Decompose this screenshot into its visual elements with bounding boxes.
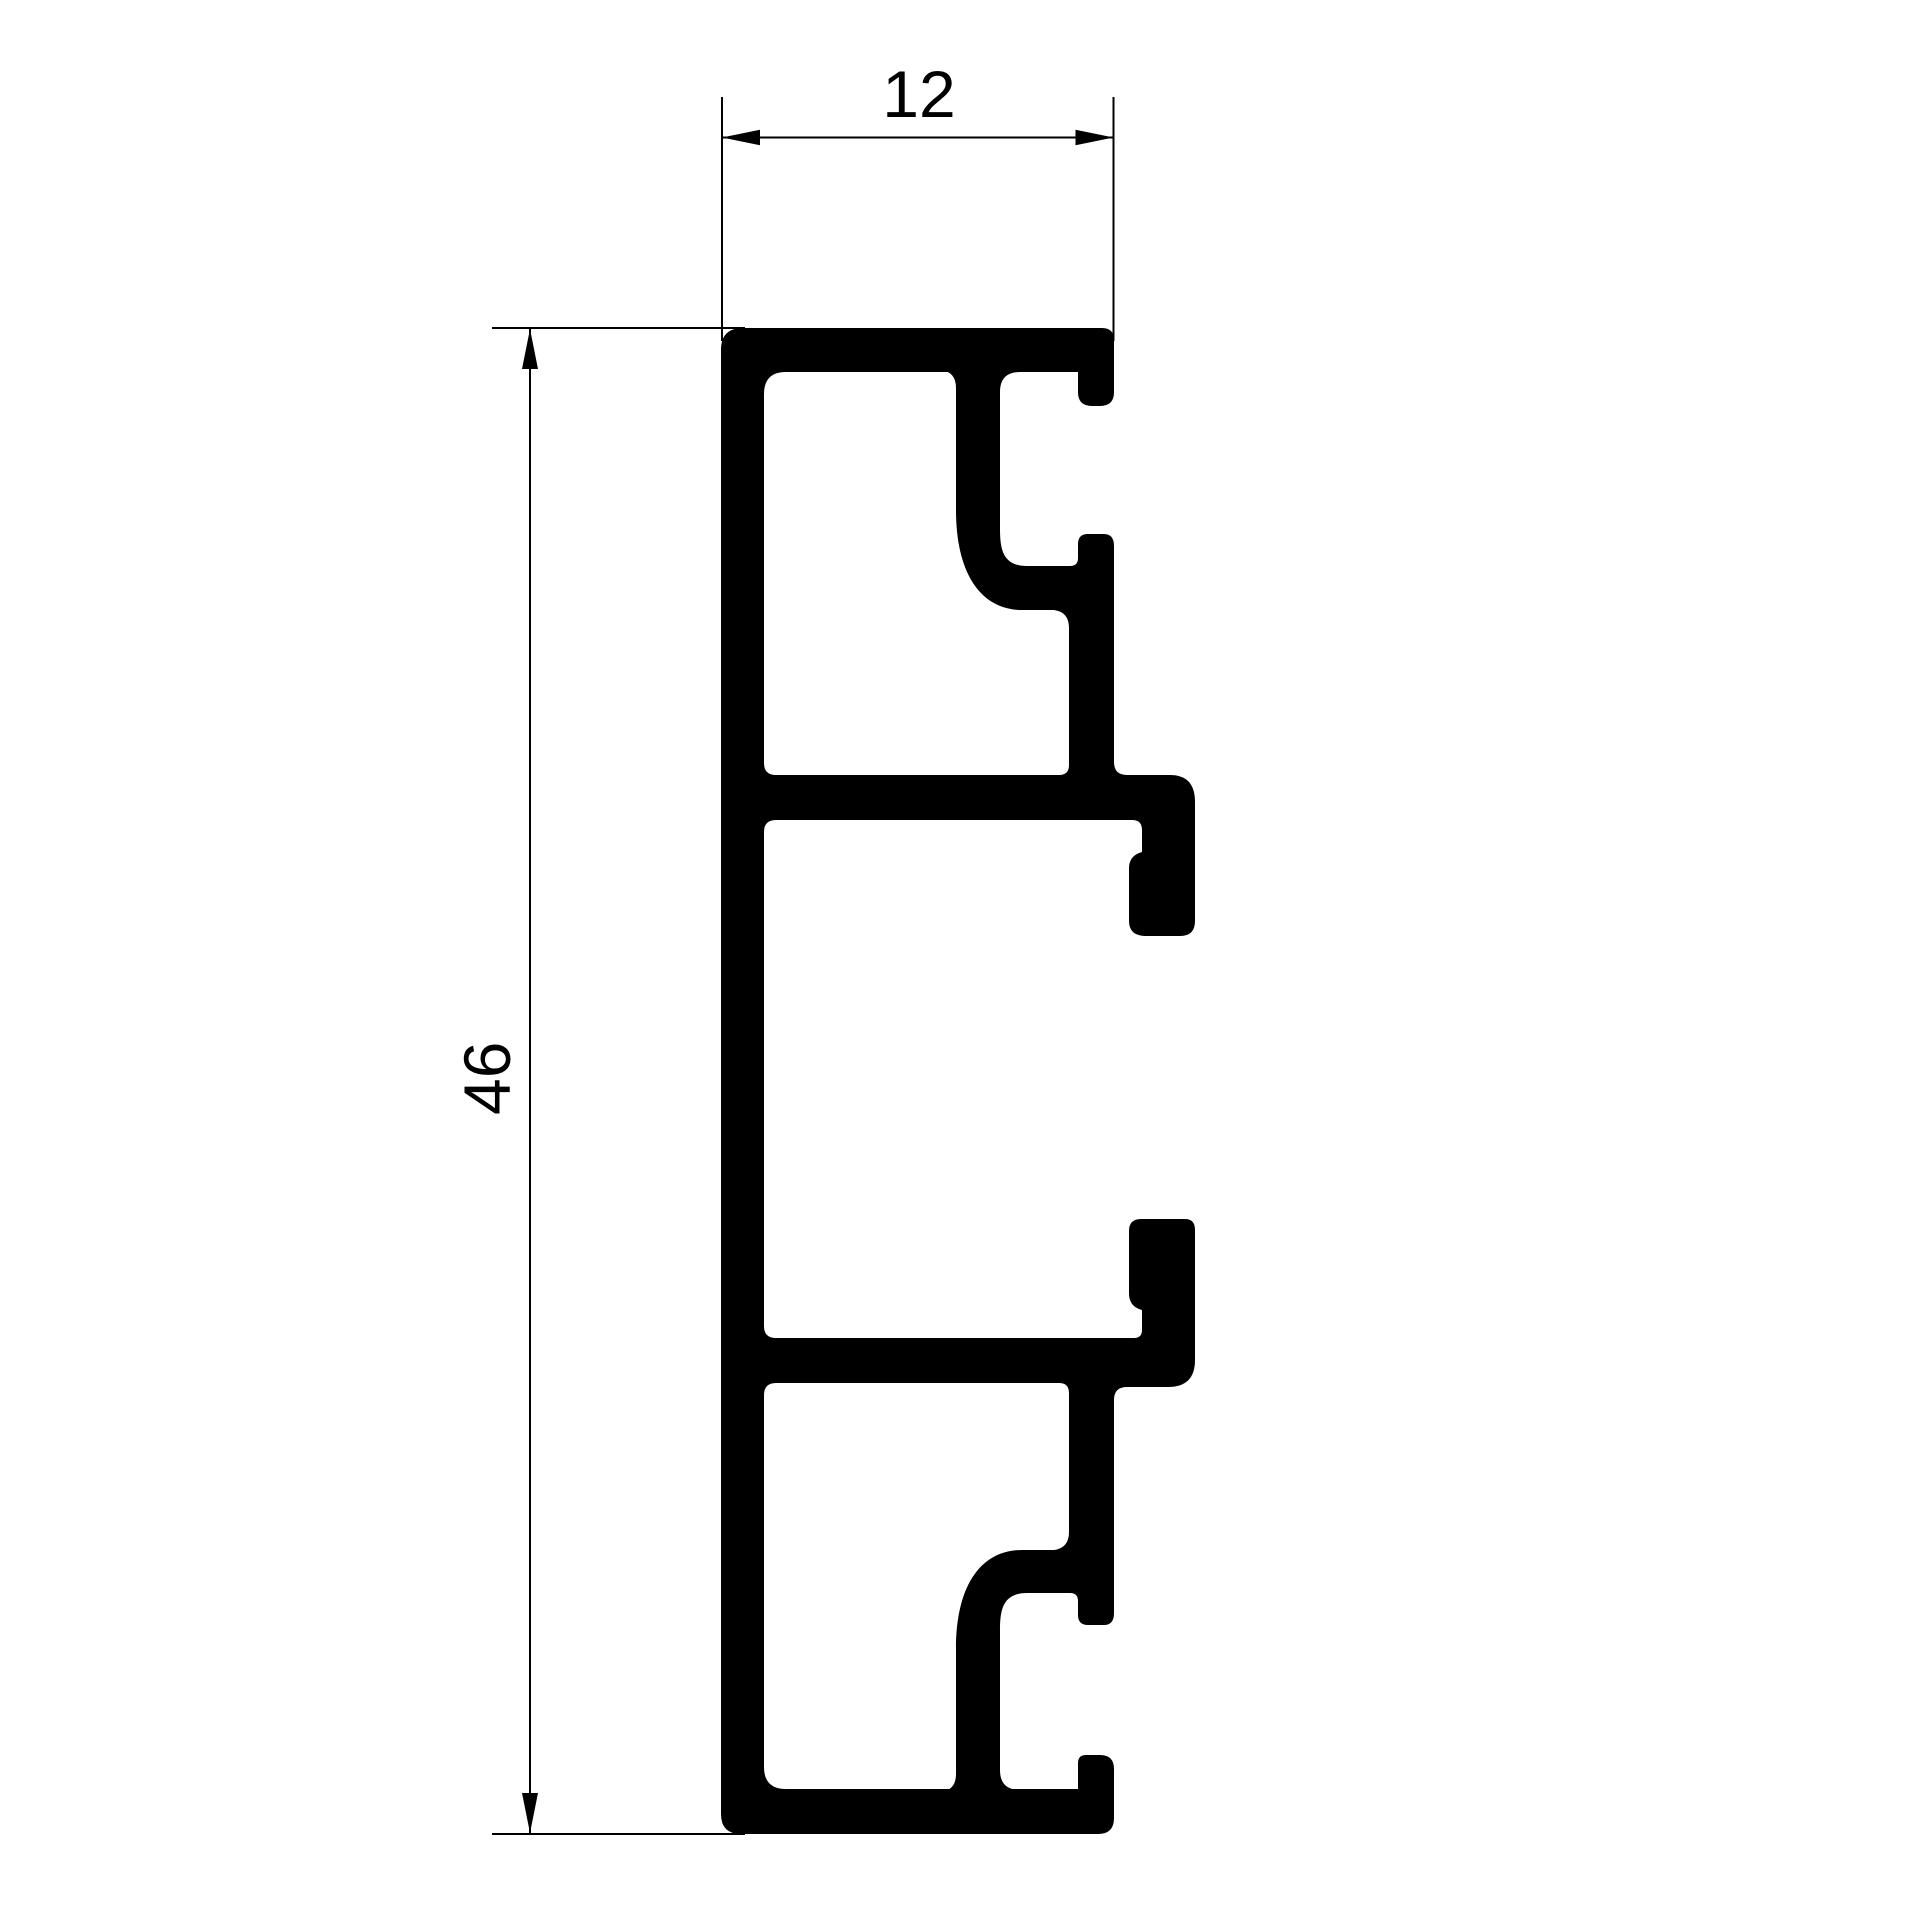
- svg-text:46: 46: [450, 1042, 524, 1115]
- svg-text:12: 12: [882, 57, 955, 131]
